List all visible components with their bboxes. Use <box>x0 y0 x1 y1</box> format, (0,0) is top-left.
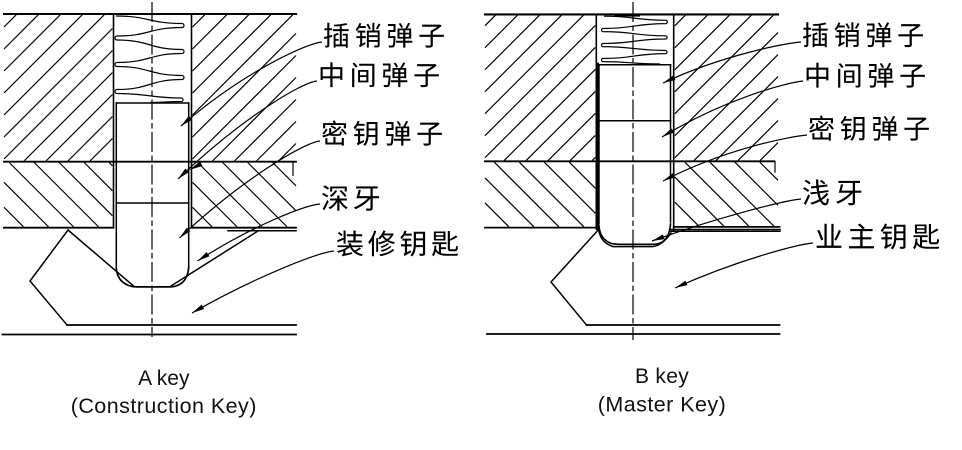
svg-text:(Construction Key): (Construction Key) <box>71 394 257 418</box>
svg-text:A key: A key <box>138 367 190 390</box>
svg-text:(Master Key): (Master Key) <box>598 393 726 417</box>
svg-text:B key: B key <box>635 365 689 388</box>
